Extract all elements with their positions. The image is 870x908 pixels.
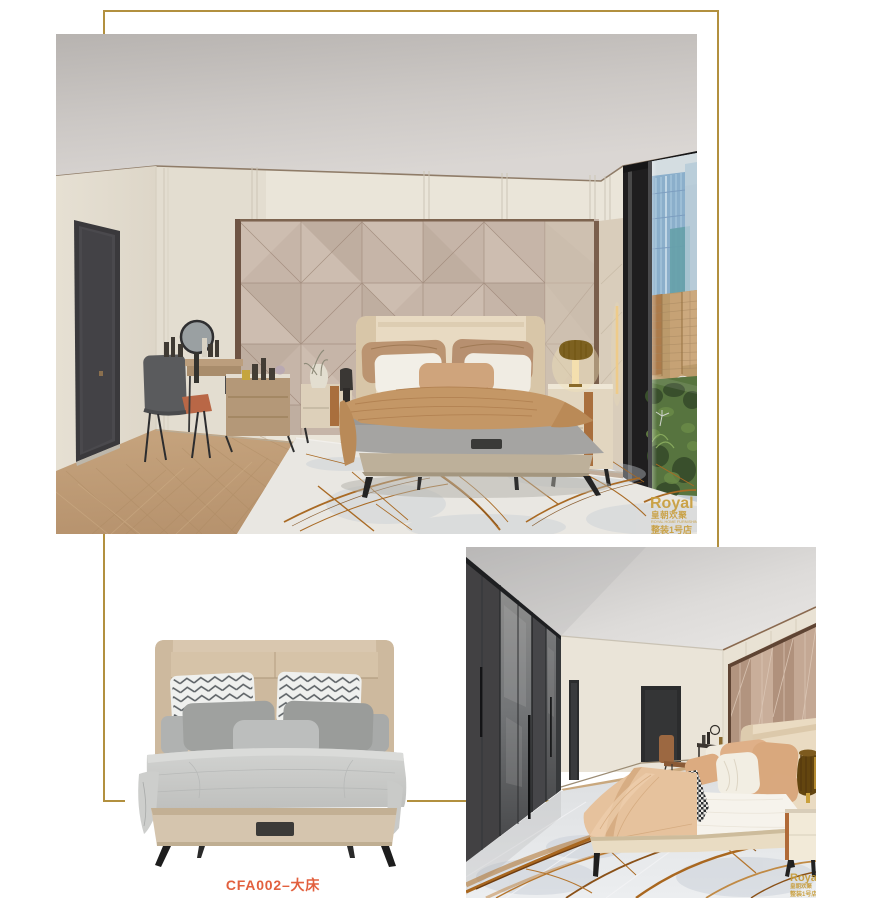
svg-text:Royal: Royal bbox=[790, 872, 816, 884]
svg-text:整装1号店: 整装1号店 bbox=[789, 890, 816, 898]
svg-text:ROYAL HOME FURNISHING: ROYAL HOME FURNISHING bbox=[651, 520, 697, 524]
svg-text:皇朝欢聚: 皇朝欢聚 bbox=[790, 882, 813, 890]
svg-text:整装1号店: 整装1号店 bbox=[650, 524, 692, 534]
svg-text:皇朝欢聚: 皇朝欢聚 bbox=[651, 510, 687, 520]
